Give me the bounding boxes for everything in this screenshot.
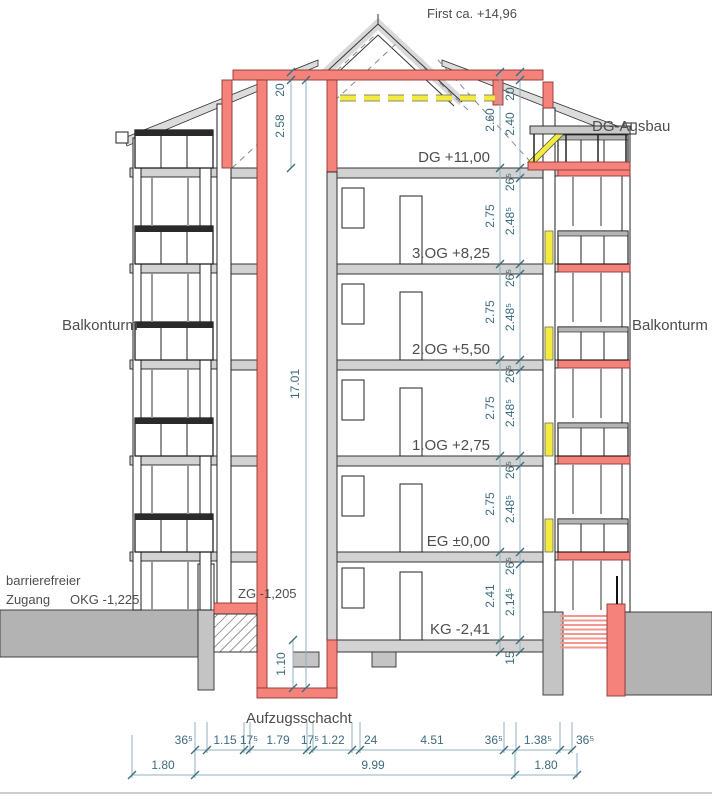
dim-bottom: 1.79 — [266, 733, 290, 747]
floor-label-dg: DG +11,00 — [418, 149, 490, 166]
dim-bottom: 36⁵ — [576, 733, 594, 747]
dim-kg-story-height: 2.41 — [483, 584, 497, 608]
floor-label-1og: 1.OG +2,75 — [412, 437, 490, 454]
balcony-box-left — [135, 226, 213, 264]
wall-left-main — [217, 104, 231, 652]
balkonturm-left-label: Balkonturm — [62, 317, 138, 334]
dim-bottom: 1.38⁵ — [524, 733, 552, 747]
attic-insulation-dashed — [340, 95, 495, 101]
dim-bottom: 36⁵ — [485, 733, 503, 747]
dim-bottom: 24 — [364, 733, 378, 747]
barrier-free-label-line1: barrierefreier — [6, 573, 81, 588]
dim-attic-left-20: 20 — [273, 83, 287, 97]
dg-ausbau-label: DG-Ausbau — [592, 118, 670, 135]
dim-clear-height: 2.48⁵ — [503, 495, 517, 523]
balcony-box-left — [135, 418, 213, 456]
barrier-free-label-line2: Zugang — [6, 592, 50, 607]
foundation-block — [372, 652, 396, 667]
dim-clear-height: 2.48⁵ — [503, 303, 517, 331]
dim-attic-right-b: 2.40 — [503, 112, 517, 136]
attic-wall-left — [222, 80, 232, 168]
ground-right — [625, 612, 712, 695]
dim-attic-right-20: 20 — [503, 87, 517, 101]
zg-level-label: ZG -1,205 — [238, 586, 297, 601]
dim-pit-depth: 1.10 — [274, 652, 288, 676]
dim-clear-height: 2.48⁵ — [503, 207, 517, 235]
dim-attic-right-a: 2.60 — [483, 108, 497, 132]
aufzugsschacht-label: Aufzugsschacht — [246, 710, 353, 727]
balcony-box-right — [558, 327, 628, 360]
hatched-block — [214, 614, 257, 652]
shaft-pit-slab — [257, 688, 337, 698]
slab-kg-right — [337, 640, 545, 652]
balcony-box-left — [135, 514, 213, 552]
dim-slab-thickness: 26⁵ — [503, 461, 517, 479]
interior-doors — [342, 188, 422, 640]
exterior-stair-right — [560, 616, 607, 648]
okg-level-label: OKG -1,225 — [70, 592, 139, 607]
dim-attic-left-h: 2.58 — [273, 114, 287, 138]
shaft-wall-right-top — [327, 80, 337, 172]
dim-bottom: 1.15 — [213, 733, 237, 747]
zg-slab — [214, 603, 257, 614]
floor-label-3og: 3.OG +8,25 — [412, 245, 490, 262]
shaft-wall-right — [327, 172, 337, 640]
dim-story-height: 2.75 — [483, 396, 497, 420]
dim-kg-clear-height: 2.14⁵ — [503, 588, 517, 616]
ground-left — [0, 610, 198, 657]
balkonturm-right-label: Balkonturm — [632, 317, 708, 334]
eave-gutter-left — [116, 132, 128, 143]
basement-wall-left — [198, 610, 214, 690]
dim-bottom: 36⁵ — [175, 733, 193, 747]
dim-kg-slab: 15 — [503, 651, 517, 665]
dim-story-height: 2.75 — [483, 204, 497, 228]
dim-slab-thickness: 26⁵ — [503, 173, 517, 191]
balcony-tower-right — [545, 130, 630, 612]
dim-bottom-total: 1.80 — [534, 758, 558, 772]
dim-bottom: 1.22 — [321, 733, 345, 747]
balcony-box-left — [135, 130, 213, 168]
dim-bottom-total: 9.99 — [361, 758, 385, 772]
balcony-slabs-right — [558, 168, 630, 560]
dim-story-height: 2.75 — [483, 300, 497, 324]
dim-bottom: 4.51 — [420, 733, 444, 747]
building-section-canvas: First ca. +14,96 DG-Ausbau Balkonturm Ba… — [0, 0, 712, 799]
dim-slab-thickness: 26⁵ — [503, 269, 517, 287]
dim-shaft-total-height: 17.01 — [288, 369, 302, 399]
dim-slab-thickness: 26⁵ — [503, 365, 517, 383]
ridge-height-label: First ca. +14,96 — [427, 6, 517, 21]
stair-wall-right — [607, 604, 625, 696]
balcony-box-right — [558, 231, 628, 264]
architectural-section-page: First ca. +14,96 DG-Ausbau Balkonturm Ba… — [0, 0, 712, 799]
dim-bottom: 17⁵ — [301, 733, 319, 747]
dim-story-height: 2.75 — [483, 492, 497, 516]
floor-label-eg: EG ±0,00 — [427, 533, 490, 550]
balcony-box-left — [135, 322, 213, 360]
dim-bottom-total: 1.80 — [151, 758, 175, 772]
dim-slab-thickness: 26⁵ — [503, 557, 517, 575]
dim-clear-height: 2.48⁵ — [503, 399, 517, 427]
balcony-box-right — [558, 423, 628, 456]
balcony-tower-left — [133, 130, 213, 610]
attic-wall-right-outer — [543, 82, 553, 108]
floor-label-kg: KG -2,41 — [430, 621, 490, 638]
floor-label-2og: 2.OG +5,50 — [412, 341, 490, 358]
dim-bottom: 17⁵ — [240, 733, 258, 747]
balcony-box-right — [558, 519, 628, 552]
